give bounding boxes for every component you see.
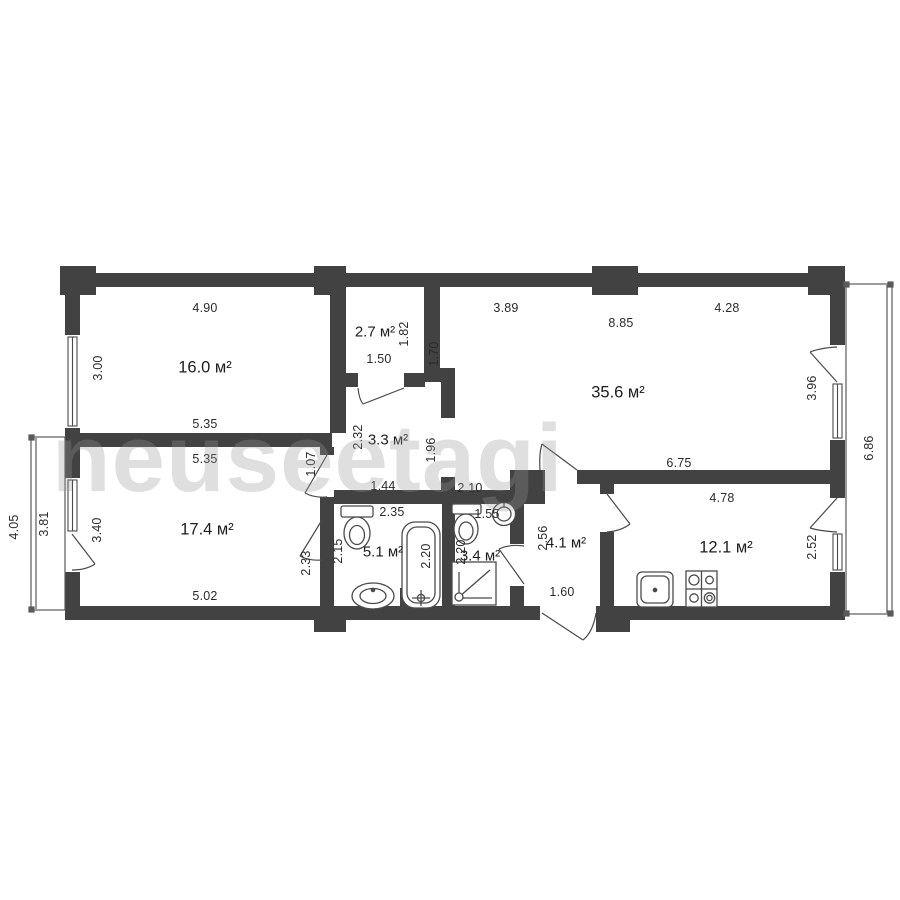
dim-k-top: 4.78 xyxy=(709,491,734,505)
dim-b51-top: 2.35 xyxy=(379,505,404,519)
door-balcony-kitchen xyxy=(810,498,837,532)
room-label-17-4: 17.4 м² xyxy=(180,521,234,540)
room-label-35-6: 35.6 м² xyxy=(591,384,645,403)
stove-icon xyxy=(686,571,717,607)
room-label-3-3: 3.3 м² xyxy=(368,432,408,449)
dim-corridor: 2.10 xyxy=(457,481,482,495)
dim-r356-top-right: 4.28 xyxy=(714,301,739,315)
dim-b51-left: 2.15 xyxy=(331,538,345,563)
dim-r356-top-left: 3.89 xyxy=(493,301,518,315)
dim-balcony-right: 6.86 xyxy=(862,435,876,460)
dim-r356-right: 3.96 xyxy=(805,375,819,400)
door-bath34 xyxy=(499,545,524,584)
room-label-2-7: 2.7 м² xyxy=(355,324,395,341)
dim-h41-left: 2.56 xyxy=(536,525,550,550)
dim-bathtub: 2.20 xyxy=(419,543,433,568)
dim-r17-left: 3.40 xyxy=(90,517,104,542)
dim-r27-bottom: 1.50 xyxy=(366,352,391,366)
window-room174 xyxy=(68,480,77,531)
dim-h33-right: 1.96 xyxy=(424,437,438,462)
dim-r16-top: 4.90 xyxy=(192,301,217,315)
door-room27 xyxy=(358,388,404,404)
dim-b51-wall: 2.33 xyxy=(299,550,313,575)
dim-r16-left: 3.00 xyxy=(91,355,105,380)
dim-h33-bottom: 1.44 xyxy=(370,479,395,493)
window-kitchen xyxy=(833,534,842,570)
dim-r356-top-mid: 8.85 xyxy=(608,316,633,330)
dim-r16-bottom: 5.35 xyxy=(192,417,217,431)
shower-icon xyxy=(452,562,496,605)
window-room16 xyxy=(68,337,77,426)
dim-b34-left: 2.20 xyxy=(454,539,468,564)
dim-wall-170: 1.70 xyxy=(427,341,441,366)
room-label-16-0: 16.0 м² xyxy=(178,359,232,378)
window-room356 xyxy=(833,384,842,438)
dim-balcony-left-outer: 4.05 xyxy=(7,514,21,539)
room-label-12-1: 12.1 м² xyxy=(699,539,753,558)
door-kitchen xyxy=(607,494,630,532)
room-label-4-1: 4.1 м² xyxy=(546,535,586,552)
dim-h33-door: 1.07 xyxy=(304,451,318,476)
dim-r17-top: 5.35 xyxy=(192,452,217,466)
dim-entrance: 1.60 xyxy=(549,585,574,599)
sink-icon-bath51 xyxy=(352,583,394,609)
dim-r27-right: 1.82 xyxy=(397,321,411,346)
door-room356 xyxy=(540,444,577,470)
dim-r17-bottom: 5.02 xyxy=(192,589,217,603)
dim-h33-left: 2.32 xyxy=(351,424,365,449)
dim-balcony-left-inner: 3.81 xyxy=(37,511,51,536)
room-label-5-1: 5.1 м² xyxy=(363,544,403,561)
dim-b34-top: 1.55 xyxy=(474,507,499,521)
dim-r356-bottom: 6.75 xyxy=(666,456,691,470)
dim-k-right: 2.52 xyxy=(805,534,819,559)
floor-plan: neuseetagi 16.0 м² 2.7 м² 35.6 м² 3.3 м²… xyxy=(0,0,900,900)
kitchen-sink-icon xyxy=(637,572,673,607)
floor-plan-drawing xyxy=(0,0,900,900)
